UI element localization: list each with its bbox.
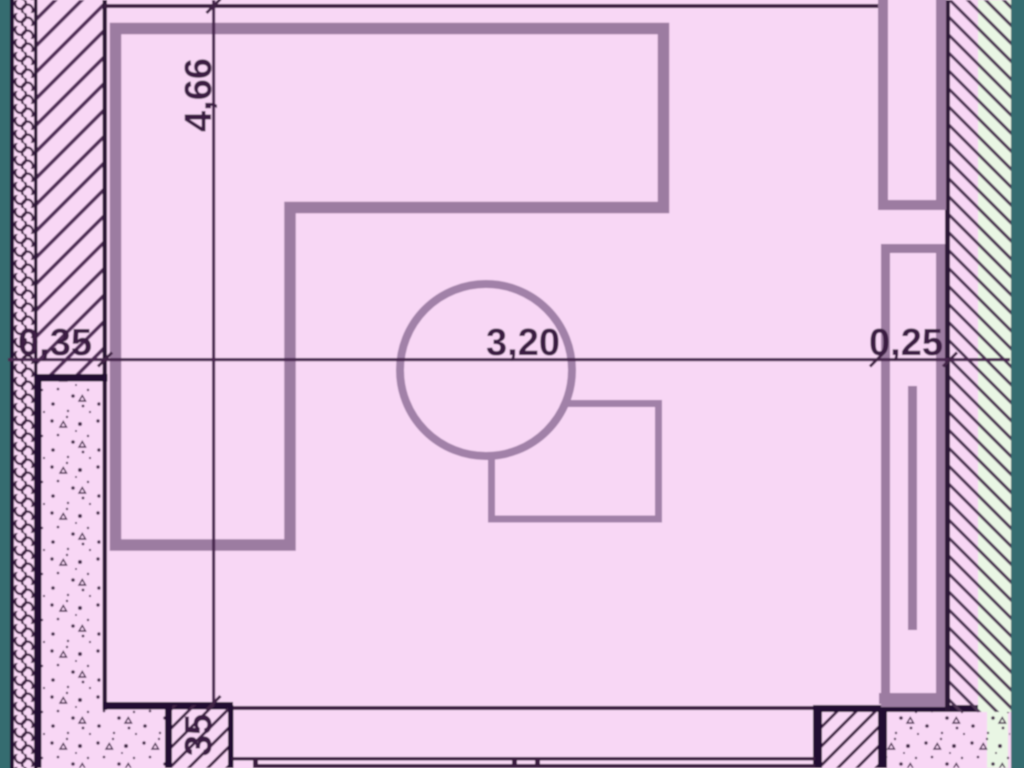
svg-text:0,35: 0,35 — [18, 322, 92, 364]
svg-text:0,25: 0,25 — [869, 322, 943, 364]
svg-text:4,66: 4,66 — [178, 58, 220, 132]
svg-text:35: 35 — [178, 714, 220, 756]
svg-text:3,20: 3,20 — [486, 322, 560, 364]
